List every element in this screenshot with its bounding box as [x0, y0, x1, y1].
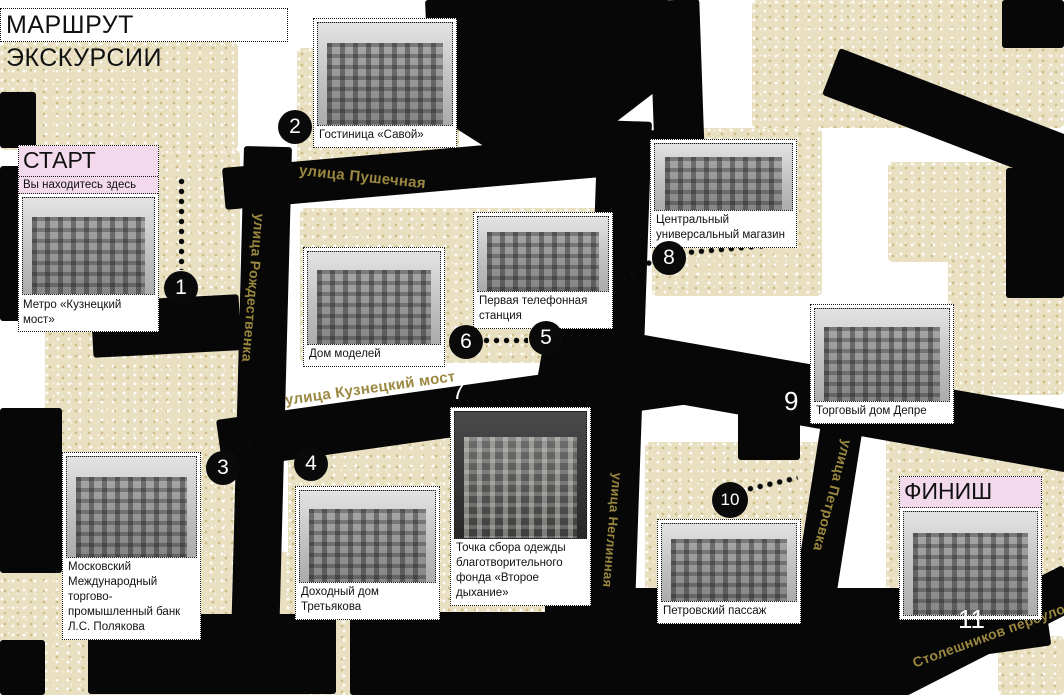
stop-number: 6	[460, 330, 472, 354]
stop-card-6: Дом моделей	[303, 247, 445, 367]
stop-photo-hotel-savoy	[317, 22, 453, 126]
stop-badge-2: 2	[278, 110, 312, 144]
stop-badge-3: 3	[206, 451, 240, 485]
stop-photo-dom-modeley	[307, 251, 441, 345]
start-sublabel: Вы находитесь здесь	[19, 177, 158, 194]
stop-badge-1: 1	[164, 271, 198, 305]
stop-badge-8: 8	[652, 241, 686, 275]
stop-photo-tsum	[654, 143, 793, 211]
stop-number-11: 11	[958, 604, 985, 635]
map-building	[0, 408, 62, 573]
stop-caption: Доходный дом Третьякова	[299, 583, 436, 616]
excursion-map: улица Пушечная улица Рождественка улица …	[0, 0, 1064, 695]
stop-caption: Дом моделей	[307, 345, 441, 363]
route-segment	[483, 337, 528, 344]
stop-card-4: Доходный дом Третьякова	[295, 486, 440, 620]
stop-number: 4	[305, 452, 317, 476]
stop-caption: Центральный универсальный магазин	[654, 211, 793, 244]
stop-photo-telephone-station	[477, 216, 609, 292]
stop-badge-5: 5	[529, 321, 563, 355]
stop-caption: Первая телефонная станция	[477, 292, 609, 325]
map-building	[1006, 168, 1064, 298]
start-card: СТАРТ Вы находитесь здесь Метро «Кузнецк…	[18, 145, 159, 332]
stop-caption: Метро «Кузнецкий мост»	[19, 298, 158, 331]
stop-card-10: Петровский пассаж	[657, 519, 801, 624]
page-title: МАРШРУТ ЭКСКУРСИИ	[0, 8, 288, 42]
stop-caption: Гостиница «Савой»	[317, 126, 453, 144]
finish-label: ФИНИШ	[900, 477, 1041, 508]
finish-card: ФИНИШ	[899, 476, 1042, 620]
stop-photo-depre-house	[814, 308, 950, 402]
stop-number-7: 7	[452, 378, 465, 405]
stop-photo-petrovsky-passage	[661, 523, 797, 602]
stop-number: 3	[217, 456, 229, 480]
stop-badge-4: 4	[294, 447, 328, 481]
route-segment	[178, 178, 185, 270]
stop-card-5: Первая телефонная станция	[473, 212, 613, 329]
stop-photo-metro-kuznetsky-most	[22, 197, 155, 295]
stop-number: 5	[540, 326, 552, 350]
stop-caption: Петровский пассаж	[661, 602, 797, 620]
stop-caption: Торговый дом Депре	[814, 402, 950, 420]
map-building	[0, 640, 45, 695]
stop-card-9: Торговый дом Депре	[810, 304, 954, 424]
start-label: СТАРТ	[19, 146, 158, 177]
stop-photo-polyakov-bank	[66, 456, 197, 558]
stop-badge-6: 6	[449, 325, 483, 359]
stop-card-3: Московский Международный торгово-промышл…	[62, 452, 201, 640]
stop-number: 2	[289, 115, 301, 139]
stop-photo-tretyakov-house	[299, 490, 436, 583]
stop-photo-finish-street	[903, 511, 1038, 616]
map-building	[0, 92, 36, 148]
stop-caption: Точка сбора одежды благотворительного фо…	[454, 539, 587, 602]
map-building	[1002, 0, 1064, 48]
stop-number-9: 9	[784, 386, 798, 417]
stop-number: 10	[721, 490, 740, 510]
stop-caption: Московский Международный торгово-промышл…	[66, 558, 197, 636]
stop-photo-vtoroe-dykhanie	[454, 411, 587, 539]
stop-number: 1	[175, 276, 187, 300]
stop-badge-10: 10	[712, 482, 748, 518]
stop-card-8: Центральный универсальный магазин	[650, 139, 797, 248]
stop-card-2: Гостиница «Савой»	[313, 18, 457, 148]
stop-number: 8	[663, 246, 675, 270]
stop-card-7: Точка сбора одежды благотворительного фо…	[450, 407, 591, 606]
